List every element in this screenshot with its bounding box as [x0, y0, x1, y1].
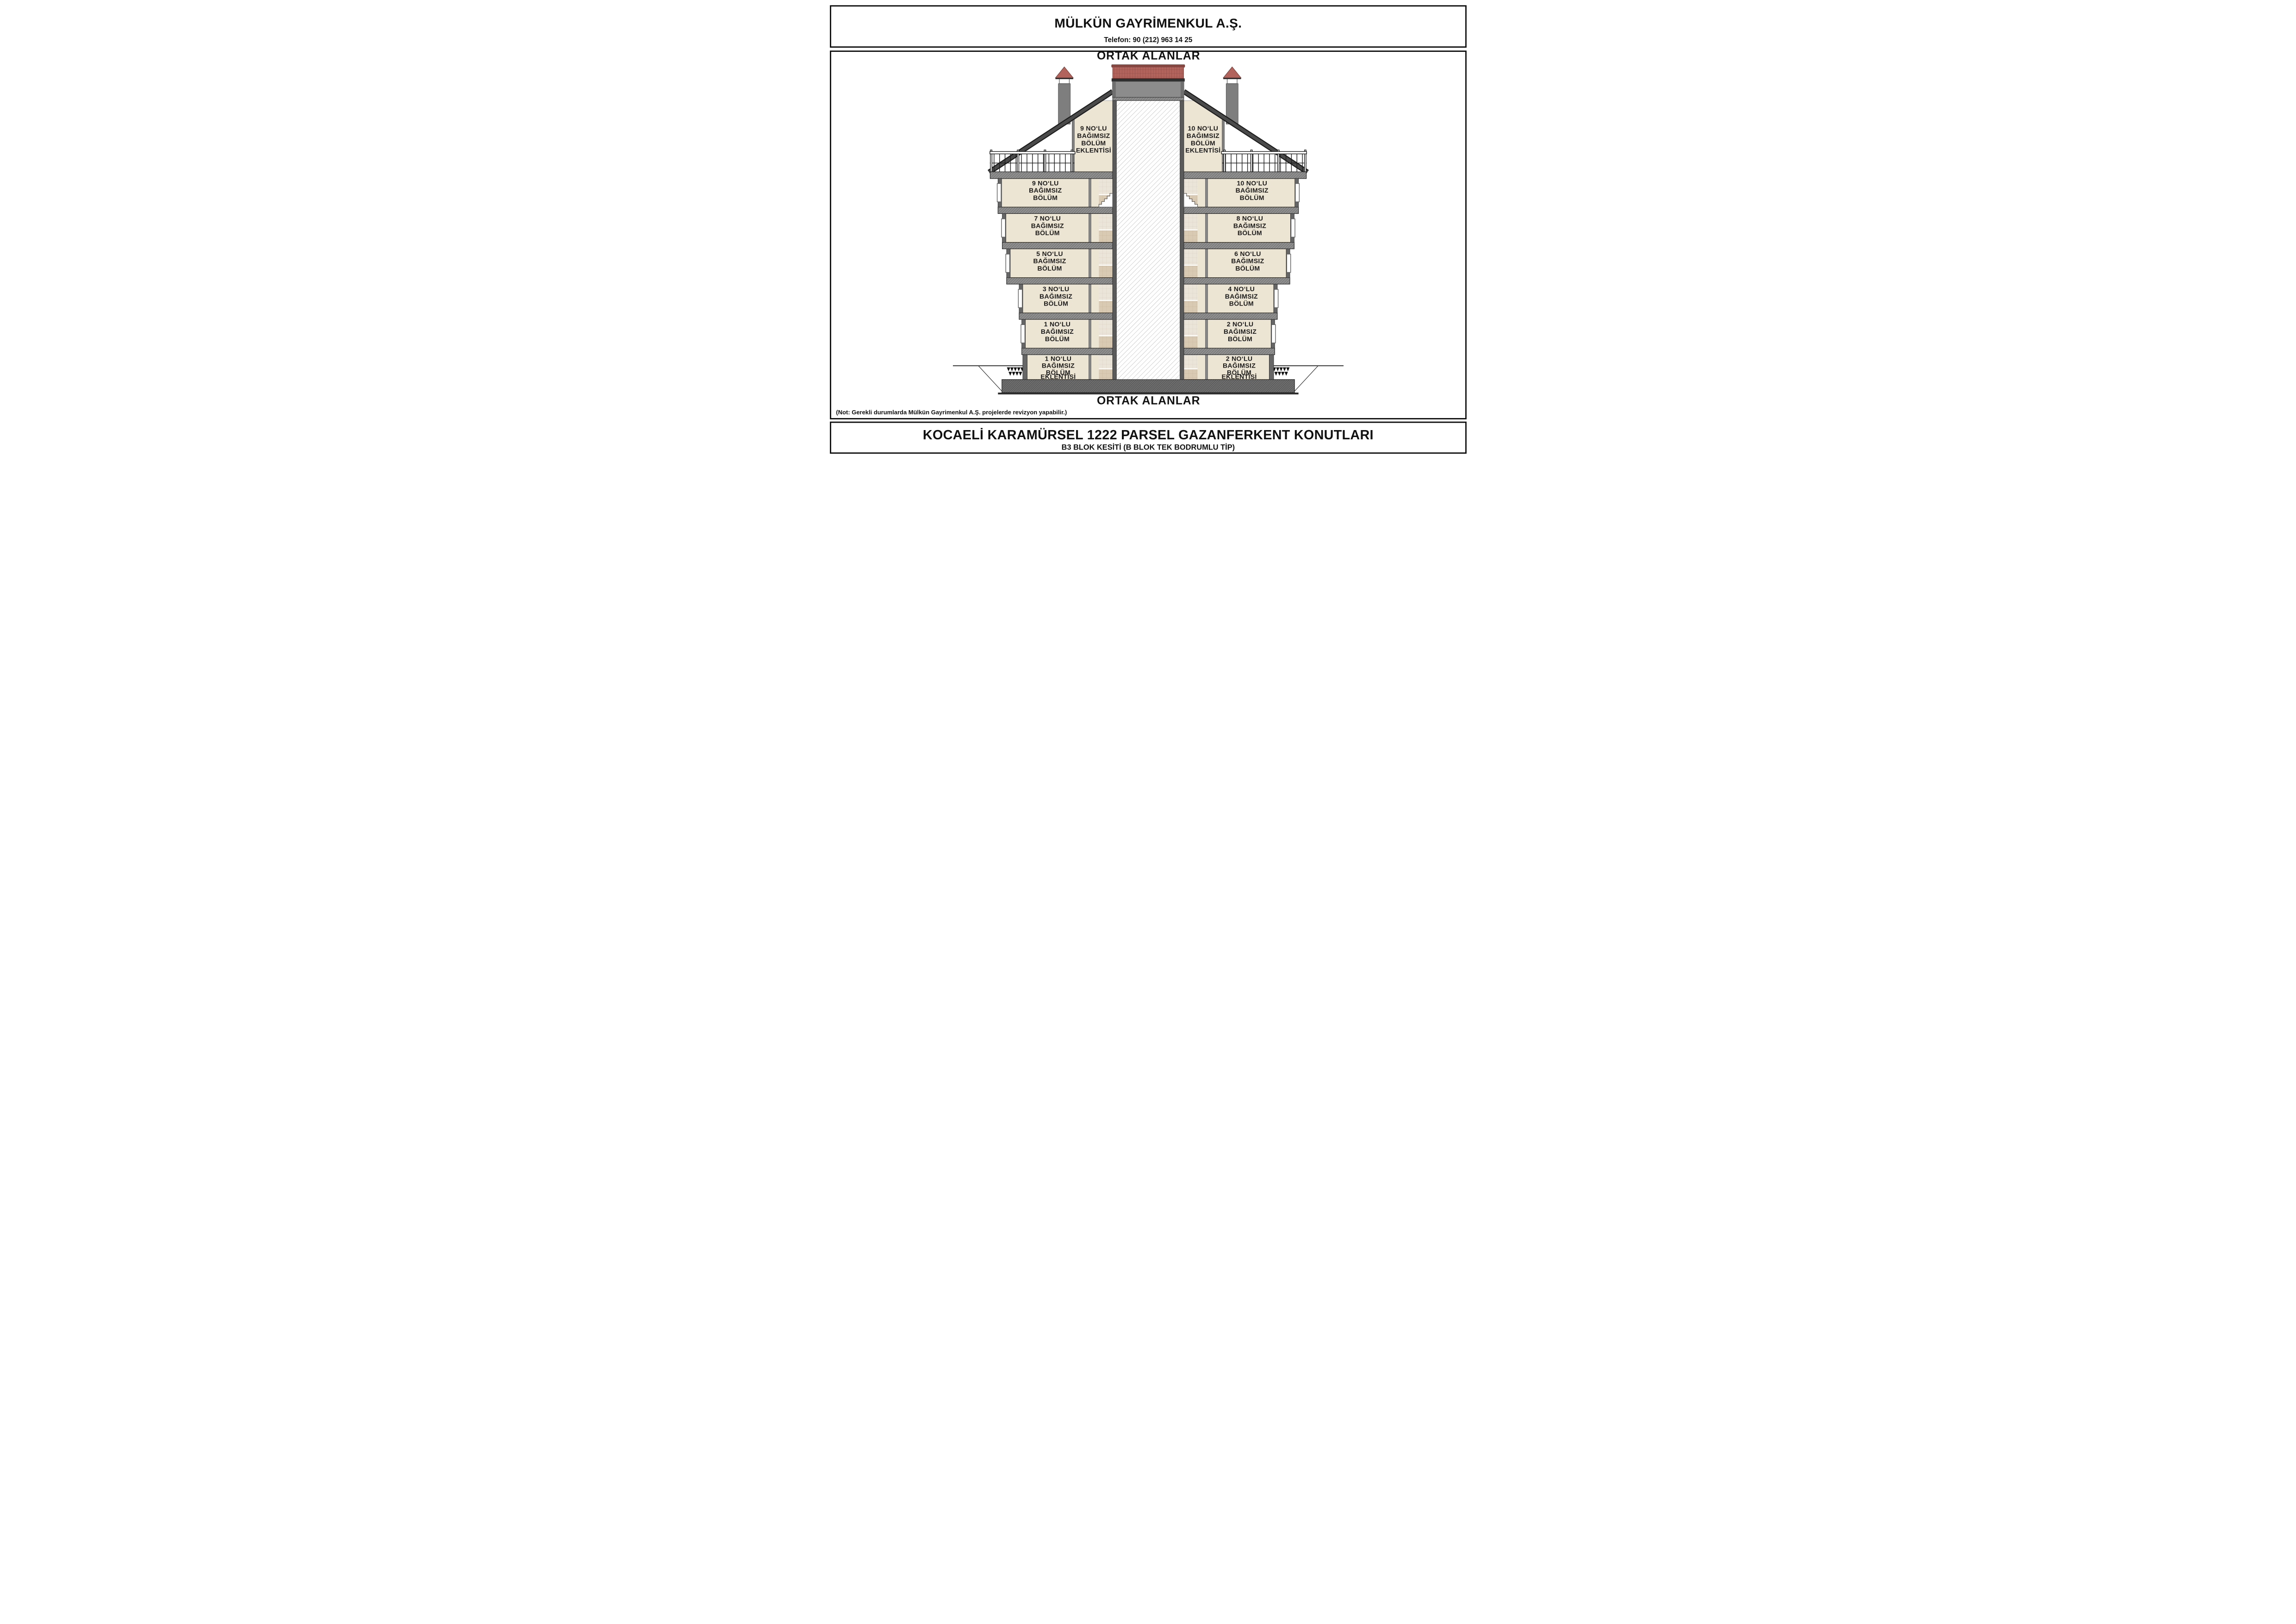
svg-text:BAĞIMSIZ: BAĞIMSIZ: [1235, 186, 1268, 194]
company-phone: Telefon: 90 (212) 963 14 25: [1104, 36, 1192, 44]
company-name: MÜLKÜN GAYRİMENKUL A.Ş.: [1054, 15, 1242, 30]
window: [1018, 289, 1022, 308]
unit-label-8: 8 NO‘LU BAĞIMSIZ BÖLÜM: [1233, 215, 1266, 237]
svg-text:8 NO‘LU: 8 NO‘LU: [1236, 215, 1263, 222]
window: [1020, 325, 1024, 343]
window: [1001, 219, 1005, 237]
svg-text:4 NO‘LU: 4 NO‘LU: [1228, 285, 1255, 293]
svg-text:BAĞIMSIZ: BAĞIMSIZ: [1231, 257, 1264, 265]
foundation: [998, 380, 1298, 394]
svg-text:BAĞIMSIZ: BAĞIMSIZ: [1029, 186, 1062, 194]
tower-wall: [1112, 81, 1184, 97]
svg-text:BAĞIMSIZ: BAĞIMSIZ: [1223, 327, 1256, 335]
svg-text:EKLENTİSİ: EKLENTİSİ: [1040, 373, 1076, 380]
svg-text:EKLENTİSİ: EKLENTİSİ: [1185, 147, 1220, 154]
svg-text:BAĞIMSIZ: BAĞIMSIZ: [1041, 361, 1074, 369]
unit-label-basement-left: 1 NO‘LU BAĞIMSIZ BÖLÜM EKLENTİSİ: [1040, 355, 1076, 380]
stair-shaft: [1113, 100, 1184, 379]
svg-text:BÖLÜM: BÖLÜM: [1045, 335, 1069, 343]
window: [1295, 183, 1299, 202]
svg-text:2 NO‘LU: 2 NO‘LU: [1226, 355, 1252, 362]
svg-text:BÖLÜM: BÖLÜM: [1237, 229, 1262, 237]
svg-text:10 NO‘LU: 10 NO‘LU: [1188, 125, 1218, 132]
window: [1274, 289, 1278, 308]
svg-text:BÖLÜM: BÖLÜM: [1227, 335, 1252, 343]
drawing-sheet: MÜLKÜN GAYRİMENKUL A.Ş. Telefon: 90 (212…: [824, 0, 1472, 458]
svg-text:9 NO‘LU: 9 NO‘LU: [1080, 125, 1107, 132]
svg-text:BAĞIMSIZ: BAĞIMSIZ: [1077, 131, 1110, 139]
unit-label-6: 6 NO‘LU BAĞIMSIZ BÖLÜM: [1231, 250, 1264, 272]
svg-text:BAĞIMSIZ: BAĞIMSIZ: [1040, 327, 1073, 335]
window: [997, 183, 1001, 202]
svg-text:9 NO‘LU: 9 NO‘LU: [1032, 179, 1058, 187]
svg-text:EKLENTİSİ: EKLENTİSİ: [1076, 147, 1111, 154]
unit-label-10: 10 NO‘LU BAĞIMSIZ BÖLÜM: [1235, 179, 1268, 201]
unit-label-9: 9 NO‘LU BAĞIMSIZ BÖLÜM: [1029, 179, 1062, 201]
svg-text:EKLENTİSİ: EKLENTİSİ: [1221, 373, 1257, 380]
svg-text:7 NO‘LU: 7 NO‘LU: [1034, 215, 1061, 222]
svg-text:BAĞIMSIZ: BAĞIMSIZ: [1186, 131, 1219, 139]
unit-label-basement-right: 2 NO‘LU BAĞIMSIZ BÖLÜM EKLENTİSİ: [1221, 355, 1257, 380]
stair-tower: [1111, 65, 1184, 101]
unit-label-1: 1 NO‘LU BAĞIMSIZ BÖLÜM: [1040, 320, 1073, 343]
svg-text:5 NO‘LU: 5 NO‘LU: [1036, 250, 1063, 257]
svg-text:BÖLÜM: BÖLÜM: [1033, 194, 1058, 201]
section-subtitle: B3 BLOK KESİTİ (B BLOK TEK BODRUMLU TİP): [1061, 443, 1234, 451]
revision-note: (Not: Gerekli durumlarda Mülkün Gayrimen…: [836, 409, 1067, 416]
svg-text:BÖLÜM: BÖLÜM: [1239, 194, 1264, 201]
svg-text:BÖLÜM: BÖLÜM: [1235, 264, 1260, 272]
svg-text:BAĞIMSIZ: BAĞIMSIZ: [1222, 361, 1255, 369]
svg-text:BÖLÜM: BÖLÜM: [1081, 139, 1106, 147]
unit-label-3: 3 NO‘LU BAĞIMSIZ BÖLÜM: [1039, 285, 1072, 307]
svg-text:2 NO‘LU: 2 NO‘LU: [1226, 320, 1253, 328]
tower-slab: [1113, 97, 1184, 100]
svg-text:BAĞIMSIZ: BAĞIMSIZ: [1031, 221, 1064, 229]
unit-label-attic-right: 10 NO‘LU BAĞIMSIZ BÖLÜM EKLENTİSİ: [1185, 125, 1220, 154]
unit-label-4: 4 NO‘LU BAĞIMSIZ BÖLÜM: [1225, 285, 1257, 307]
common-areas-bottom-label: ORTAK ALANLAR: [1097, 394, 1200, 407]
svg-text:BAĞIMSIZ: BAĞIMSIZ: [1225, 292, 1257, 300]
svg-text:BÖLÜM: BÖLÜM: [1044, 300, 1068, 307]
tower-fascia: [1111, 78, 1184, 81]
shaft-hatch: [1116, 100, 1180, 379]
unit-label-7: 7 NO‘LU BAĞIMSIZ BÖLÜM: [1031, 215, 1064, 237]
window: [1271, 325, 1275, 343]
svg-text:10 NO‘LU: 10 NO‘LU: [1237, 179, 1267, 187]
unit-label-5: 5 NO‘LU BAĞIMSIZ BÖLÜM: [1033, 250, 1066, 272]
svg-text:BAĞIMSIZ: BAĞIMSIZ: [1033, 257, 1066, 265]
svg-text:1 NO‘LU: 1 NO‘LU: [1045, 355, 1071, 362]
svg-text:BAĞIMSIZ: BAĞIMSIZ: [1233, 221, 1266, 229]
tower-roof-tiles: [1113, 67, 1184, 79]
window: [1287, 254, 1290, 273]
svg-text:1 NO‘LU: 1 NO‘LU: [1044, 320, 1070, 328]
svg-text:BÖLÜM: BÖLÜM: [1035, 229, 1059, 237]
window: [1006, 254, 1009, 273]
svg-text:BAĞIMSIZ: BAĞIMSIZ: [1039, 292, 1072, 300]
unit-label-2: 2 NO‘LU BAĞIMSIZ BÖLÜM: [1223, 320, 1256, 343]
svg-text:6 NO‘LU: 6 NO‘LU: [1234, 250, 1261, 257]
unit-label-attic-left: 9 NO‘LU BAĞIMSIZ BÖLÜM EKLENTİSİ: [1076, 125, 1111, 154]
svg-text:BÖLÜM: BÖLÜM: [1229, 300, 1253, 307]
svg-text:3 NO‘LU: 3 NO‘LU: [1042, 285, 1069, 293]
project-title: KOCAELİ KARAMÜRSEL 1222 PARSEL GAZANFERK…: [922, 427, 1373, 443]
common-areas-top-label: ORTAK ALANLAR: [1097, 50, 1200, 62]
svg-text:BÖLÜM: BÖLÜM: [1037, 264, 1062, 272]
svg-text:BÖLÜM: BÖLÜM: [1190, 139, 1215, 147]
window: [1291, 219, 1294, 237]
